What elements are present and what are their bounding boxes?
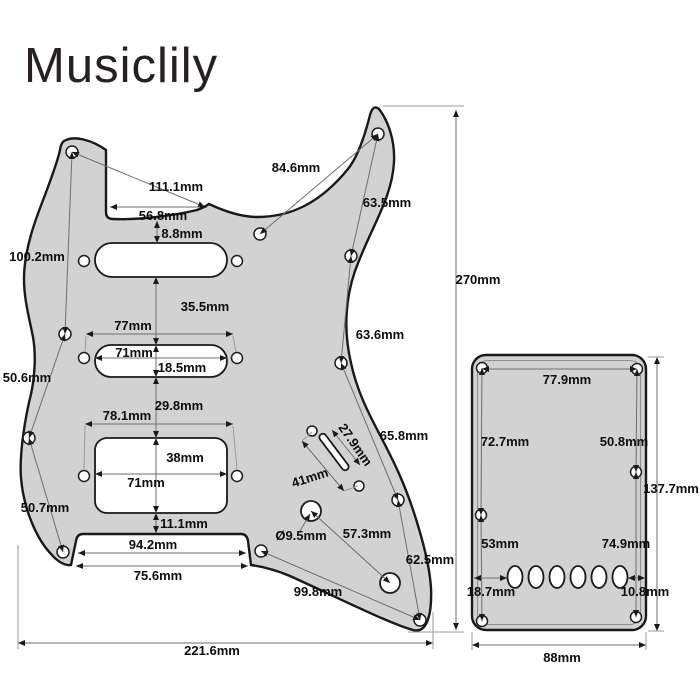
dim-label: 71mm (127, 475, 165, 490)
dim-label: 75.6mm (134, 568, 182, 583)
pickup-screw-hole (79, 353, 90, 364)
dim-label: 100.2mm (9, 249, 65, 264)
pickup-screw-hole (79, 471, 90, 482)
dim-label: 72.7mm (481, 434, 529, 449)
diagram-canvas: Musiclily (0, 0, 700, 700)
string-hole (571, 566, 586, 588)
dim-label: 63.5mm (363, 195, 411, 210)
dim-label: 35.5mm (181, 299, 229, 314)
pickup-screw-hole (232, 256, 243, 267)
dim-label: 71mm (115, 345, 153, 360)
string-hole (550, 566, 565, 588)
pickup-screw-hole (79, 256, 90, 267)
dim-label: 88mm (543, 650, 581, 665)
dim-label: 99.8mm (294, 584, 342, 599)
dim-label: 74.9mm (602, 536, 650, 551)
dim-label: 53mm (481, 536, 519, 551)
neck-pickup-opening (95, 243, 227, 277)
dim-label: 10.8mm (621, 584, 669, 599)
dim-label: 8.8mm (161, 226, 202, 241)
dim-label: 94.2mm (129, 537, 177, 552)
dim-label: 50.6mm (3, 370, 51, 385)
dim-label: 56.8mm (139, 208, 187, 223)
pickguard-dimension-diagram: Musiclily (0, 0, 700, 700)
dim-label: 111.1mm (149, 179, 203, 194)
brand-logo: Musiclily (24, 39, 218, 93)
dim-label: 78.1mm (103, 408, 151, 423)
dim-label: 38mm (166, 450, 204, 465)
dim-label: 77mm (114, 318, 152, 333)
dim-label: 50.8mm (600, 434, 648, 449)
dim-label: 29.8mm (155, 398, 203, 413)
dim-label: 84.6mm (272, 160, 320, 175)
dim-label: 18.7mm (467, 584, 515, 599)
dim-label: Ø9.5mm (275, 528, 326, 543)
dim-label: 63.6mm (356, 327, 404, 342)
dim-label: 50.7mm (21, 500, 69, 515)
dim-label: 270mm (456, 272, 501, 287)
string-hole (592, 566, 607, 588)
dim-label: 65.8mm (380, 428, 428, 443)
dim-label: 18.5mm (158, 360, 206, 375)
dim-label: 77.9mm (543, 372, 591, 387)
switch-screw-hole (354, 481, 364, 491)
string-hole (529, 566, 544, 588)
pickup-screw-hole (232, 471, 243, 482)
dim-label: 137.7mm (643, 481, 699, 496)
pickguard-shape (21, 107, 431, 630)
dim-label: 221.6mm (184, 643, 240, 658)
dim-label: 11.1mm (160, 516, 208, 531)
dim-label: 57.3mm (343, 526, 391, 541)
dim-label: 62.5mm (406, 552, 454, 567)
pickup-screw-hole (232, 353, 243, 364)
